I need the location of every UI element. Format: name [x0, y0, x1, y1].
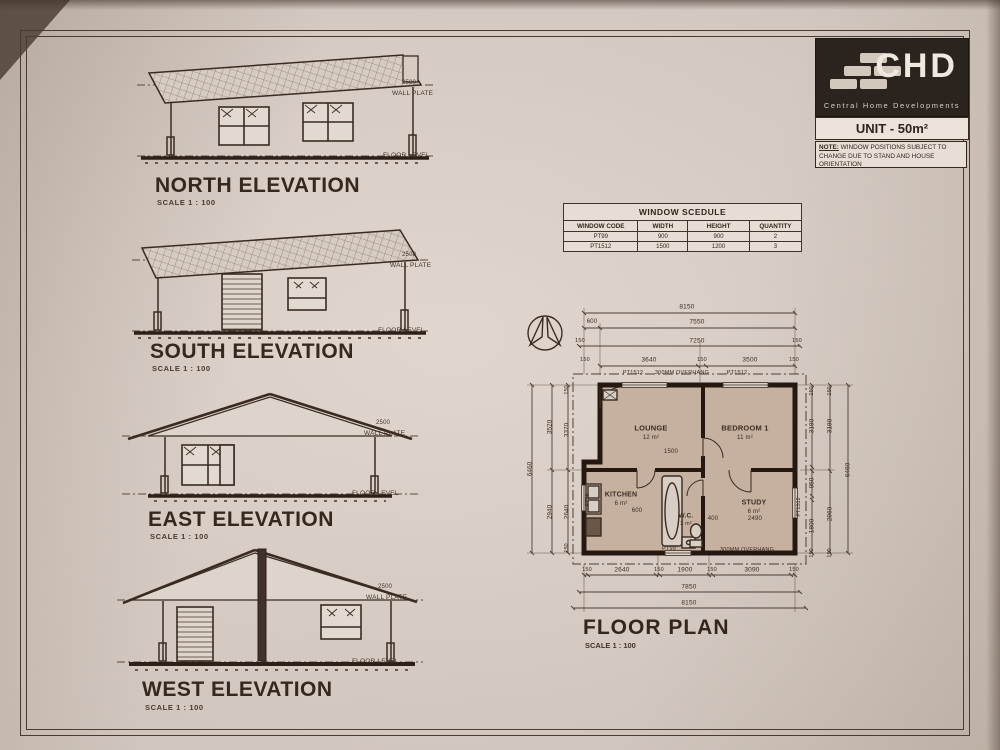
dim-left-outer-top: 3520 [547, 420, 554, 434]
dim-top-row2: 7550 [689, 319, 704, 326]
dim-top-row3: 7250 [689, 338, 704, 345]
schedule-cell-height: 900 [687, 232, 749, 241]
wall-plate-value: 2500 [402, 80, 416, 86]
floor-level-label: FLOOR LEVEL [383, 152, 430, 159]
room-label-wc: W.C. [679, 513, 694, 520]
window-tag: PT1512 [623, 370, 643, 376]
dim-left-inner-bottom: 2640 [564, 505, 571, 519]
dim-tick: 150 [564, 385, 570, 394]
west-elevation-scale: SCALE 1 : 100 [145, 703, 204, 712]
roof [142, 230, 418, 278]
schedule-cell-qty: 2 [749, 232, 801, 241]
dim-bottom-seg3: 3090 [744, 567, 759, 574]
dim-tick: 150 [697, 357, 707, 363]
dim-bottom-row2: 7850 [681, 584, 696, 591]
dim-top-left: 3640 [641, 357, 656, 364]
wall-plate-label: WALL PLATE [390, 262, 431, 269]
window [182, 445, 234, 485]
east-elevation-scale: SCALE 1 : 100 [150, 532, 209, 541]
dim-left-outer-bottom: 2940 [547, 505, 554, 519]
dim-top-overall: 8150 [679, 304, 694, 311]
roof [149, 55, 421, 103]
room-label-study: STUDY [742, 500, 767, 507]
wall-plate-label: WALL PLATE [364, 430, 405, 437]
dim-tick: 150 [827, 386, 833, 395]
plan-sheet-photo: { "brand": { "name": "CHD", "tagline": "… [0, 0, 1000, 750]
wall-plate-value: 2500 [378, 584, 392, 590]
window [321, 605, 361, 639]
unit-size-label: UNIT - 50m² [815, 117, 969, 140]
window-schedule-table: WINDOW SCEDULE WINDOW CODE WIDTH HEIGHT … [563, 203, 802, 252]
dim-right-col1-mid: 950 [809, 478, 816, 489]
window [288, 278, 326, 310]
north-elevation-scale: SCALE 1 : 100 [157, 198, 216, 207]
wall-plate-label: WALL PLATE [366, 594, 407, 601]
room-area-kitchen: 6 m² [615, 501, 628, 507]
north-arrow-icon [528, 316, 562, 350]
dim-study-width: 2490 [748, 516, 762, 522]
brand-name: CHD [875, 47, 958, 86]
dim-tick: 150 [792, 338, 802, 344]
south-elevation-scale: SCALE 1 : 100 [152, 364, 211, 373]
window [219, 103, 353, 145]
schedule-header-row: WINDOW CODE WIDTH HEIGHT QUANTITY [564, 221, 801, 232]
dim-kitchen-door: 600 [632, 508, 643, 514]
window-tag: PT99 [662, 546, 676, 552]
dim-tick: 150 [789, 567, 799, 573]
window-tag: PT1512 [796, 497, 802, 516]
room-area-wc: 3 m² [680, 521, 692, 527]
dim-tick: 150 [707, 567, 717, 573]
schedule-row: PT1512 1500 1200 3 [564, 242, 801, 251]
schedule-title: WINDOW SCEDULE [564, 204, 801, 221]
door [177, 607, 213, 661]
dim-tick: 150 [575, 338, 585, 344]
dim-opening: 1500 [664, 449, 678, 455]
room-area-lounge: 12 m² [643, 435, 659, 441]
photo-top-shadow [0, 0, 1000, 10]
dim-right-overall: 6460 [845, 463, 852, 477]
schedule-cell-code: PT99 [564, 232, 637, 241]
floor-plan-title: FLOOR PLAN [583, 616, 730, 640]
south-elevation-title: SOUTH ELEVATION [150, 340, 354, 364]
wall-plate-value: 2500 [402, 252, 416, 258]
schedule-header-width: WIDTH [637, 221, 687, 231]
schedule-header-quantity: QUANTITY [749, 221, 801, 231]
note-text: WINDOW POSITIONS SUBJECT TO CHANGE DUE T… [819, 144, 946, 168]
dim-tick: 150 [580, 357, 590, 363]
floor-level-label: FLOOR LEVEL [352, 658, 399, 665]
room-label-bedroom: BEDROOM 1 [721, 424, 768, 433]
west-elevation-title: WEST ELEVATION [142, 678, 333, 702]
dim-tick: 150 [789, 357, 799, 363]
door [222, 274, 262, 330]
dim-right-col1-bottom: 1800 [809, 519, 816, 533]
dim-study-left: 400 [708, 516, 719, 522]
room-label-kitchen: KITCHEN [605, 492, 638, 499]
overhang-note: 300MM OVERHANG [655, 370, 709, 376]
photo-edge-shadow [986, 0, 1000, 750]
floor-plan-scale: SCALE 1 : 100 [585, 641, 636, 650]
plan-walls [584, 385, 795, 553]
company-logo: CHD Central Home Developments [815, 38, 969, 117]
north-elevation-title: NORTH ELEVATION [155, 174, 360, 198]
room-area-study: 6 m² [748, 509, 761, 515]
schedule-header-height: HEIGHT [687, 221, 749, 231]
schedule-cell-qty: 3 [749, 242, 801, 251]
dim-right-col1-top: 3190 [809, 419, 816, 433]
dim-tick: 150 [564, 543, 570, 552]
dim-tick: 150 [809, 386, 815, 395]
dim-top-right: 3500 [742, 357, 757, 364]
dim-tick: 150 [809, 548, 815, 557]
note-label: NOTE: [819, 144, 839, 151]
schedule-cell-code: PT1512 [564, 242, 637, 251]
overhang-note: 300MM OVERHANG [720, 547, 774, 553]
dim-left-overall: 6460 [527, 462, 534, 476]
dim-bottom-seg2: 1900 [677, 567, 692, 574]
dim-tick: 150 [654, 567, 664, 573]
room-label-lounge: LOUNGE [634, 424, 667, 433]
dim-right-col2-top: 3190 [827, 419, 834, 433]
window-tag: PT99 [585, 493, 591, 506]
room-area-bedroom: 11 m² [737, 435, 753, 441]
dim-left-inner-top: 3370 [564, 423, 571, 437]
floor-level-label: FLOOR LEVEL [378, 327, 425, 334]
dim-bottom-overall: 8150 [681, 600, 696, 607]
wall-plate-label: WALL PLATE [392, 90, 433, 97]
east-elevation-title: EAST ELEVATION [148, 508, 334, 532]
window-tag: PT1512 [727, 370, 747, 376]
flue [258, 549, 266, 661]
schedule-header-window-code: WINDOW CODE [564, 221, 637, 231]
floor-level-label: FLOOR LEVEL [352, 490, 399, 497]
schedule-row: PT99 900 900 2 [564, 232, 801, 242]
dim-tick: 150 [582, 567, 592, 573]
dim-bottom-seg1: 2640 [614, 567, 629, 574]
note-box: NOTE: WINDOW POSITIONS SUBJECT TO CHANGE… [815, 141, 967, 168]
schedule-cell-width: 900 [637, 232, 687, 241]
dim-top-step: 600 [587, 319, 598, 325]
wall-plate-value: 2500 [376, 420, 390, 426]
schedule-cell-width: 1500 [637, 242, 687, 251]
dim-tick: 150 [827, 548, 833, 557]
dim-right-col2-bottom: 2960 [827, 507, 834, 521]
schedule-cell-height: 1200 [687, 242, 749, 251]
brand-tagline: Central Home Developments [816, 101, 968, 110]
